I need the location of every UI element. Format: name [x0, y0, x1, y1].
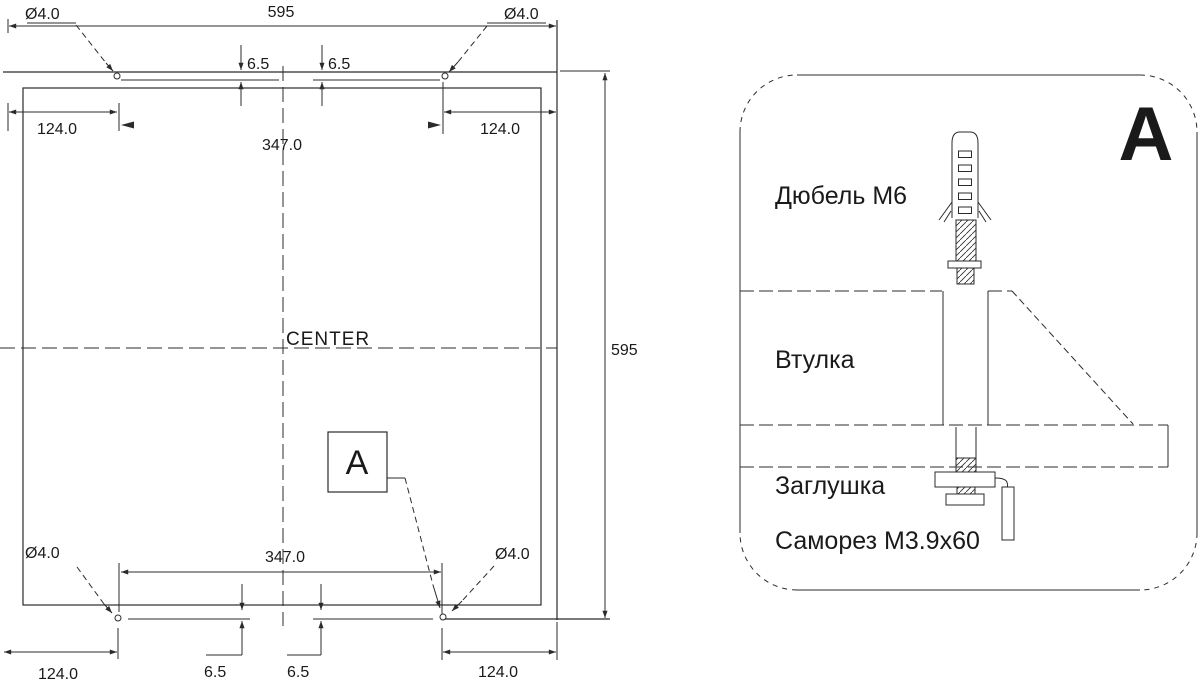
label-bushing: Втулка — [775, 346, 855, 374]
hole-top-left — [114, 73, 120, 79]
detail-view: A — [740, 75, 1197, 590]
dim-124-top-right: 124.0 — [443, 82, 556, 138]
label-screw: Саморез M3.9x60 — [775, 527, 980, 555]
dim-124-top-left: 124.0 — [8, 103, 119, 138]
hole-dia-text: Ø4.0 — [25, 6, 60, 23]
screw-shaft — [956, 427, 976, 458]
hole-bottom-left — [115, 615, 121, 621]
dim-text: 347.0 — [265, 549, 305, 566]
screw-head — [946, 494, 984, 505]
callout-hole-bottom-right: Ø4.0 — [452, 546, 530, 611]
hole-dia-text: Ø4.0 — [25, 545, 60, 562]
screw-shaft-hatch — [956, 458, 976, 472]
dim-text: 124.0 — [37, 121, 77, 138]
dim-text: 595 — [611, 342, 638, 359]
outside-arrow-right — [428, 122, 441, 129]
hole-top-right — [442, 73, 448, 79]
dim-text: 347.0 — [262, 137, 302, 154]
detail-marker-letter: A — [346, 444, 369, 482]
dim-text: 6.5 — [247, 56, 269, 73]
panel-inner-frame — [23, 88, 541, 605]
dim-width-595: 595 — [8, 4, 556, 33]
dim-text: 124.0 — [478, 664, 518, 680]
border-corner-br — [1140, 533, 1197, 590]
dim-text: 124.0 — [38, 666, 78, 680]
technical-drawing-canvas: CENTER 595 595 Ø4.0 Ø4.0 — [0, 0, 1200, 680]
bushing-graphic — [943, 291, 988, 425]
leader-dash — [77, 567, 104, 604]
callout-hole-top-right: Ø4.0 — [449, 6, 546, 72]
label-dowel: Дюбель M6 — [775, 182, 907, 210]
label-plug: Заглушка — [775, 472, 885, 500]
hole-dia-text: Ø4.0 — [504, 6, 539, 23]
dowel-slot — [959, 207, 972, 214]
dowel-graphic — [939, 132, 991, 284]
dim-124-bottom-left: 124.0 — [4, 628, 118, 680]
projection-line — [1012, 291, 1133, 424]
mounting-drawing-svg: CENTER 595 595 Ø4.0 Ø4.0 — [0, 0, 1200, 680]
leader-dash — [458, 26, 487, 62]
dim-text: 595 — [268, 4, 295, 21]
dim-347-top: 347.0 — [121, 122, 441, 155]
dim-347-bottom: 347.0 — [119, 549, 442, 614]
hole-bottom-right — [440, 614, 446, 620]
dowel-screw-hatch-lower — [957, 268, 974, 284]
dowel-slot — [959, 151, 972, 158]
callout-hole-top-left: Ø4.0 — [25, 6, 113, 71]
leader-dash — [405, 478, 433, 585]
leader-arrow — [452, 601, 462, 611]
dim-65-bottom-left: 6.5 — [204, 584, 242, 680]
leader-arrow — [449, 62, 458, 72]
mounting-slots — [121, 80, 440, 619]
mounting-holes — [114, 73, 448, 621]
outside-arrow-left — [121, 122, 134, 129]
detail-marker: A — [328, 432, 440, 608]
dowel-collar — [948, 261, 981, 268]
dim-65-top-right: 6.5 — [322, 45, 350, 106]
screw-neck-hatch — [957, 487, 975, 494]
dowel-slot — [959, 193, 972, 200]
panel-section-strip — [740, 425, 1168, 467]
plug-flange — [935, 472, 995, 487]
dim-text: 124.0 — [480, 121, 520, 138]
detail-title-letter: A — [1119, 92, 1174, 177]
border-corner-tl — [740, 75, 797, 132]
panel-outline — [3, 20, 610, 620]
dim-text: 6.5 — [204, 664, 226, 680]
leader-dash — [76, 25, 106, 63]
center-label: CENTER — [286, 329, 370, 350]
main-view: CENTER 595 595 Ø4.0 Ø4.0 — [0, 4, 638, 680]
dowel-slot — [959, 179, 972, 186]
dim-65-bottom-right: 6.5 — [287, 584, 321, 680]
dim-65-top-left: 6.5 — [241, 45, 269, 106]
dim-text: 6.5 — [287, 664, 309, 680]
screw-side-view — [1002, 487, 1014, 540]
leader-dash — [462, 566, 494, 601]
dowel-screw-hatch — [956, 220, 976, 261]
hole-dia-text: Ø4.0 — [495, 546, 530, 563]
dim-text: 6.5 — [328, 56, 350, 73]
dim-height-595: 595 — [560, 71, 638, 618]
dowel-body — [952, 132, 978, 218]
callout-hole-bottom-left: Ø4.0 — [25, 545, 112, 613]
dim-124-bottom-right: 124.0 — [442, 622, 557, 680]
leader-arrow — [106, 63, 113, 71]
dowel-slot — [959, 165, 972, 172]
